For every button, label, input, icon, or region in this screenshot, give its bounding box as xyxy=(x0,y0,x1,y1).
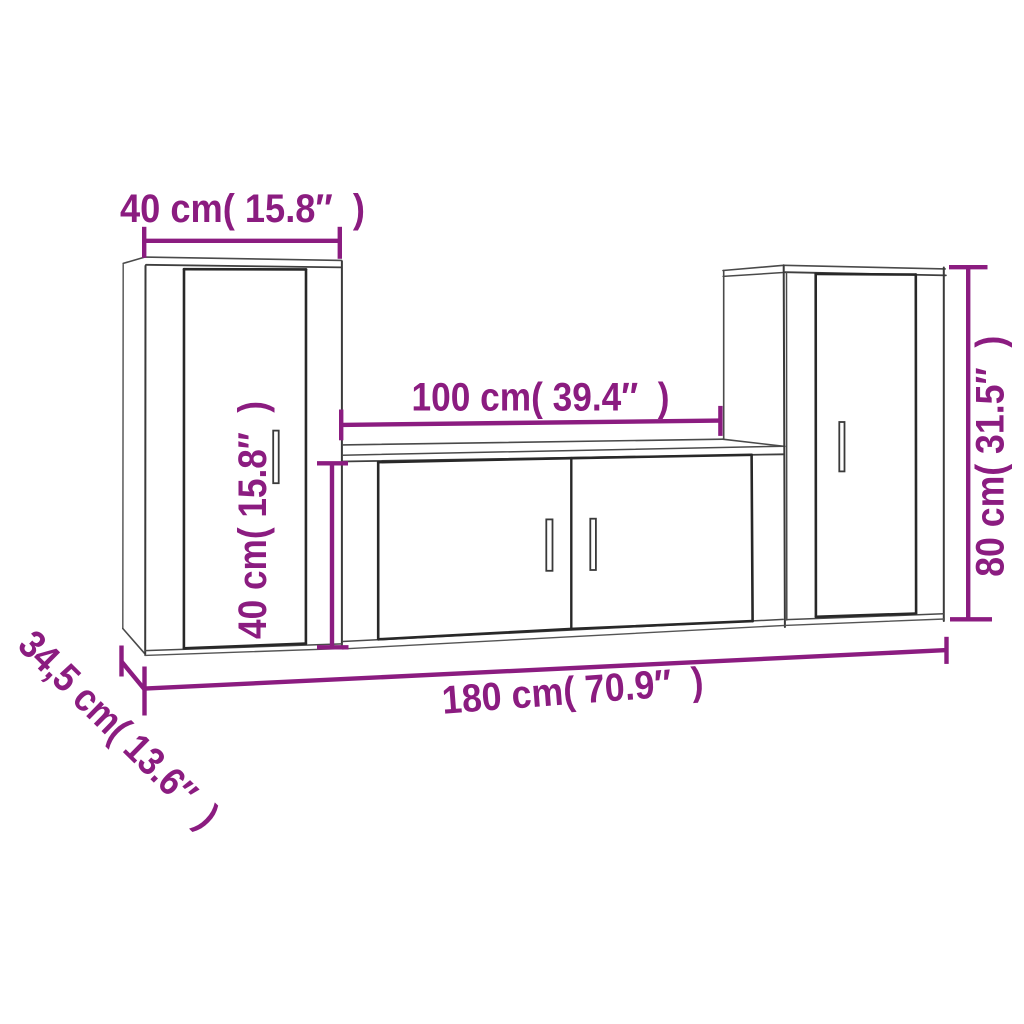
svg-text:40 cm( 15.8″ ): 40 cm( 15.8″ ) xyxy=(120,187,365,231)
svg-text:100 cm( 39.4″ ): 100 cm( 39.4″ ) xyxy=(412,375,670,419)
svg-text:80 cm( 31.5″ ): 80 cm( 31.5″ ) xyxy=(969,336,1013,577)
svg-text:40 cm( 15.8″ ): 40 cm( 15.8″ ) xyxy=(231,401,275,639)
